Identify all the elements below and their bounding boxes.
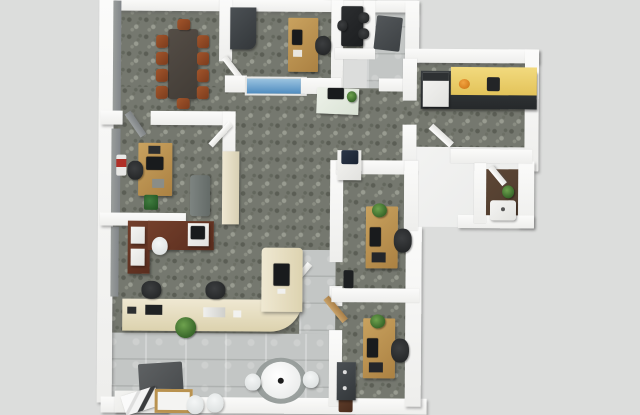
office-center-desk-item <box>372 252 386 262</box>
lobby-chair <box>207 393 224 412</box>
green-bin <box>144 195 158 210</box>
cabinet-knob <box>343 386 347 390</box>
conference-chair <box>197 35 209 48</box>
wall-art <box>116 155 126 176</box>
wall-office-center-right <box>404 161 418 231</box>
reception-chair <box>205 281 225 299</box>
reception-chair <box>141 281 161 299</box>
entry-mat <box>373 15 403 52</box>
wall-inner-face-conference <box>113 1 122 119</box>
conference-chair <box>156 86 168 99</box>
counter-tray <box>203 307 225 317</box>
reception-keyboard <box>277 289 285 294</box>
gray-sofa <box>190 175 210 216</box>
office-left-monitor <box>146 157 163 170</box>
wall-office-divider <box>331 288 419 303</box>
office-center-monitor <box>370 227 381 246</box>
conference-chair <box>197 86 209 99</box>
desk-papers <box>293 50 302 57</box>
workstation-monitor <box>191 226 205 239</box>
window-desk-monitor <box>328 88 344 99</box>
office-center-bin <box>343 270 353 288</box>
office-top-chair <box>315 36 331 55</box>
lobby-stool <box>245 373 261 390</box>
office-center-chair <box>394 229 412 253</box>
wall-under-conference-left <box>101 110 123 124</box>
conference-table <box>168 29 198 99</box>
office-bottom-monitor <box>367 338 378 357</box>
lobby-chair <box>187 395 204 414</box>
desk-accessory <box>148 146 160 154</box>
counter-item <box>233 310 241 317</box>
exterior-wall-right-lower <box>405 227 422 407</box>
office-bottom-cabinet <box>337 362 356 400</box>
lobby-stool <box>303 371 319 388</box>
printer-nook-device <box>341 150 358 164</box>
office-bottom-chair <box>391 338 409 362</box>
workstation-chair <box>152 237 168 255</box>
desk-keyboard <box>152 179 164 188</box>
orange-bowl <box>459 79 470 89</box>
conference-chair-foot <box>177 98 190 109</box>
office-bottom-desk-item <box>369 362 383 372</box>
wall-nook-bottom <box>335 48 375 59</box>
wall-inner-face-workstation <box>110 227 118 297</box>
coffee-maker <box>487 77 500 91</box>
cream-bookcase <box>222 151 240 224</box>
window-wall-left <box>225 75 247 92</box>
office-center-plant <box>372 203 387 217</box>
corner-cabinet <box>230 7 256 49</box>
conference-chair <box>156 52 168 65</box>
sink-drain <box>501 207 505 211</box>
reception-laptop <box>145 305 162 315</box>
reception-plant <box>175 317 196 338</box>
reception-phone <box>127 307 136 314</box>
bathroom-plant <box>502 185 514 198</box>
nook-chair <box>358 28 369 39</box>
kitchen-wall-top <box>405 49 539 64</box>
round-table-center <box>278 378 284 384</box>
wall-under-conference-right <box>151 111 231 126</box>
reception-monitor <box>273 264 289 286</box>
floor-plan-render <box>0 0 640 415</box>
conference-chair <box>156 69 168 82</box>
white-drawer-unit <box>131 227 145 244</box>
office-bottom-plant <box>370 314 385 328</box>
office-left-chair <box>127 161 143 180</box>
office-top-desk <box>288 18 318 72</box>
white-drawer-unit <box>131 249 145 266</box>
office-building <box>0 0 640 415</box>
window-desk-plant <box>347 91 357 102</box>
kitchen-fridge-top <box>423 73 449 81</box>
kitchen-wall-bottom <box>450 149 532 164</box>
cabinet-knob <box>343 370 347 374</box>
office-top-monitor <box>292 30 302 45</box>
conference-chair <box>156 35 168 48</box>
conference-chair-head <box>177 19 190 30</box>
conference-chair <box>197 52 209 65</box>
conference-chair <box>197 69 209 82</box>
nook-chair <box>337 20 347 31</box>
interior-window <box>245 76 307 95</box>
nook-chair <box>358 12 369 23</box>
kitchen-wall-left-upper <box>403 59 417 101</box>
bathroom-wall-left <box>474 163 486 223</box>
